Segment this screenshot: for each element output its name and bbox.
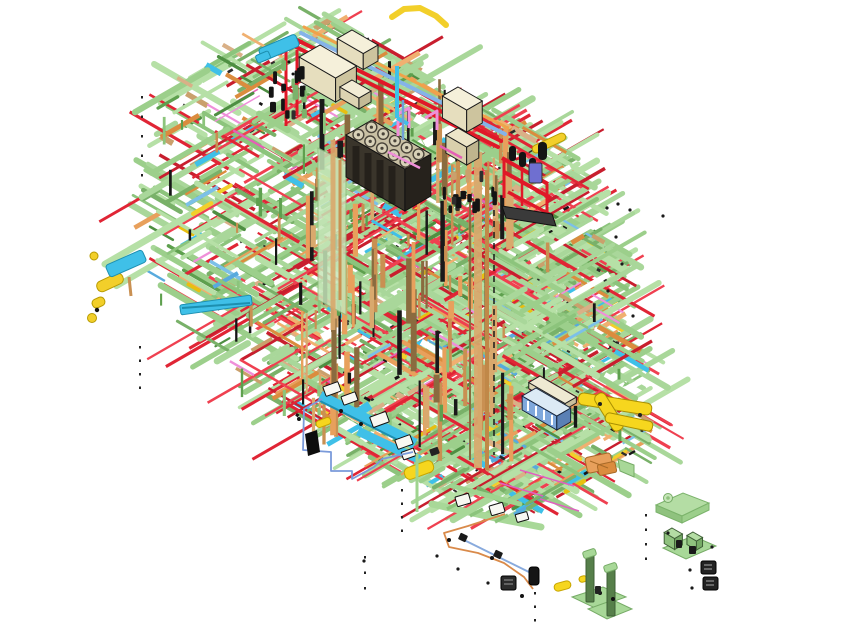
isometric-mep-model[interactable] (0, 0, 850, 638)
model-viewport[interactable] (0, 0, 850, 638)
